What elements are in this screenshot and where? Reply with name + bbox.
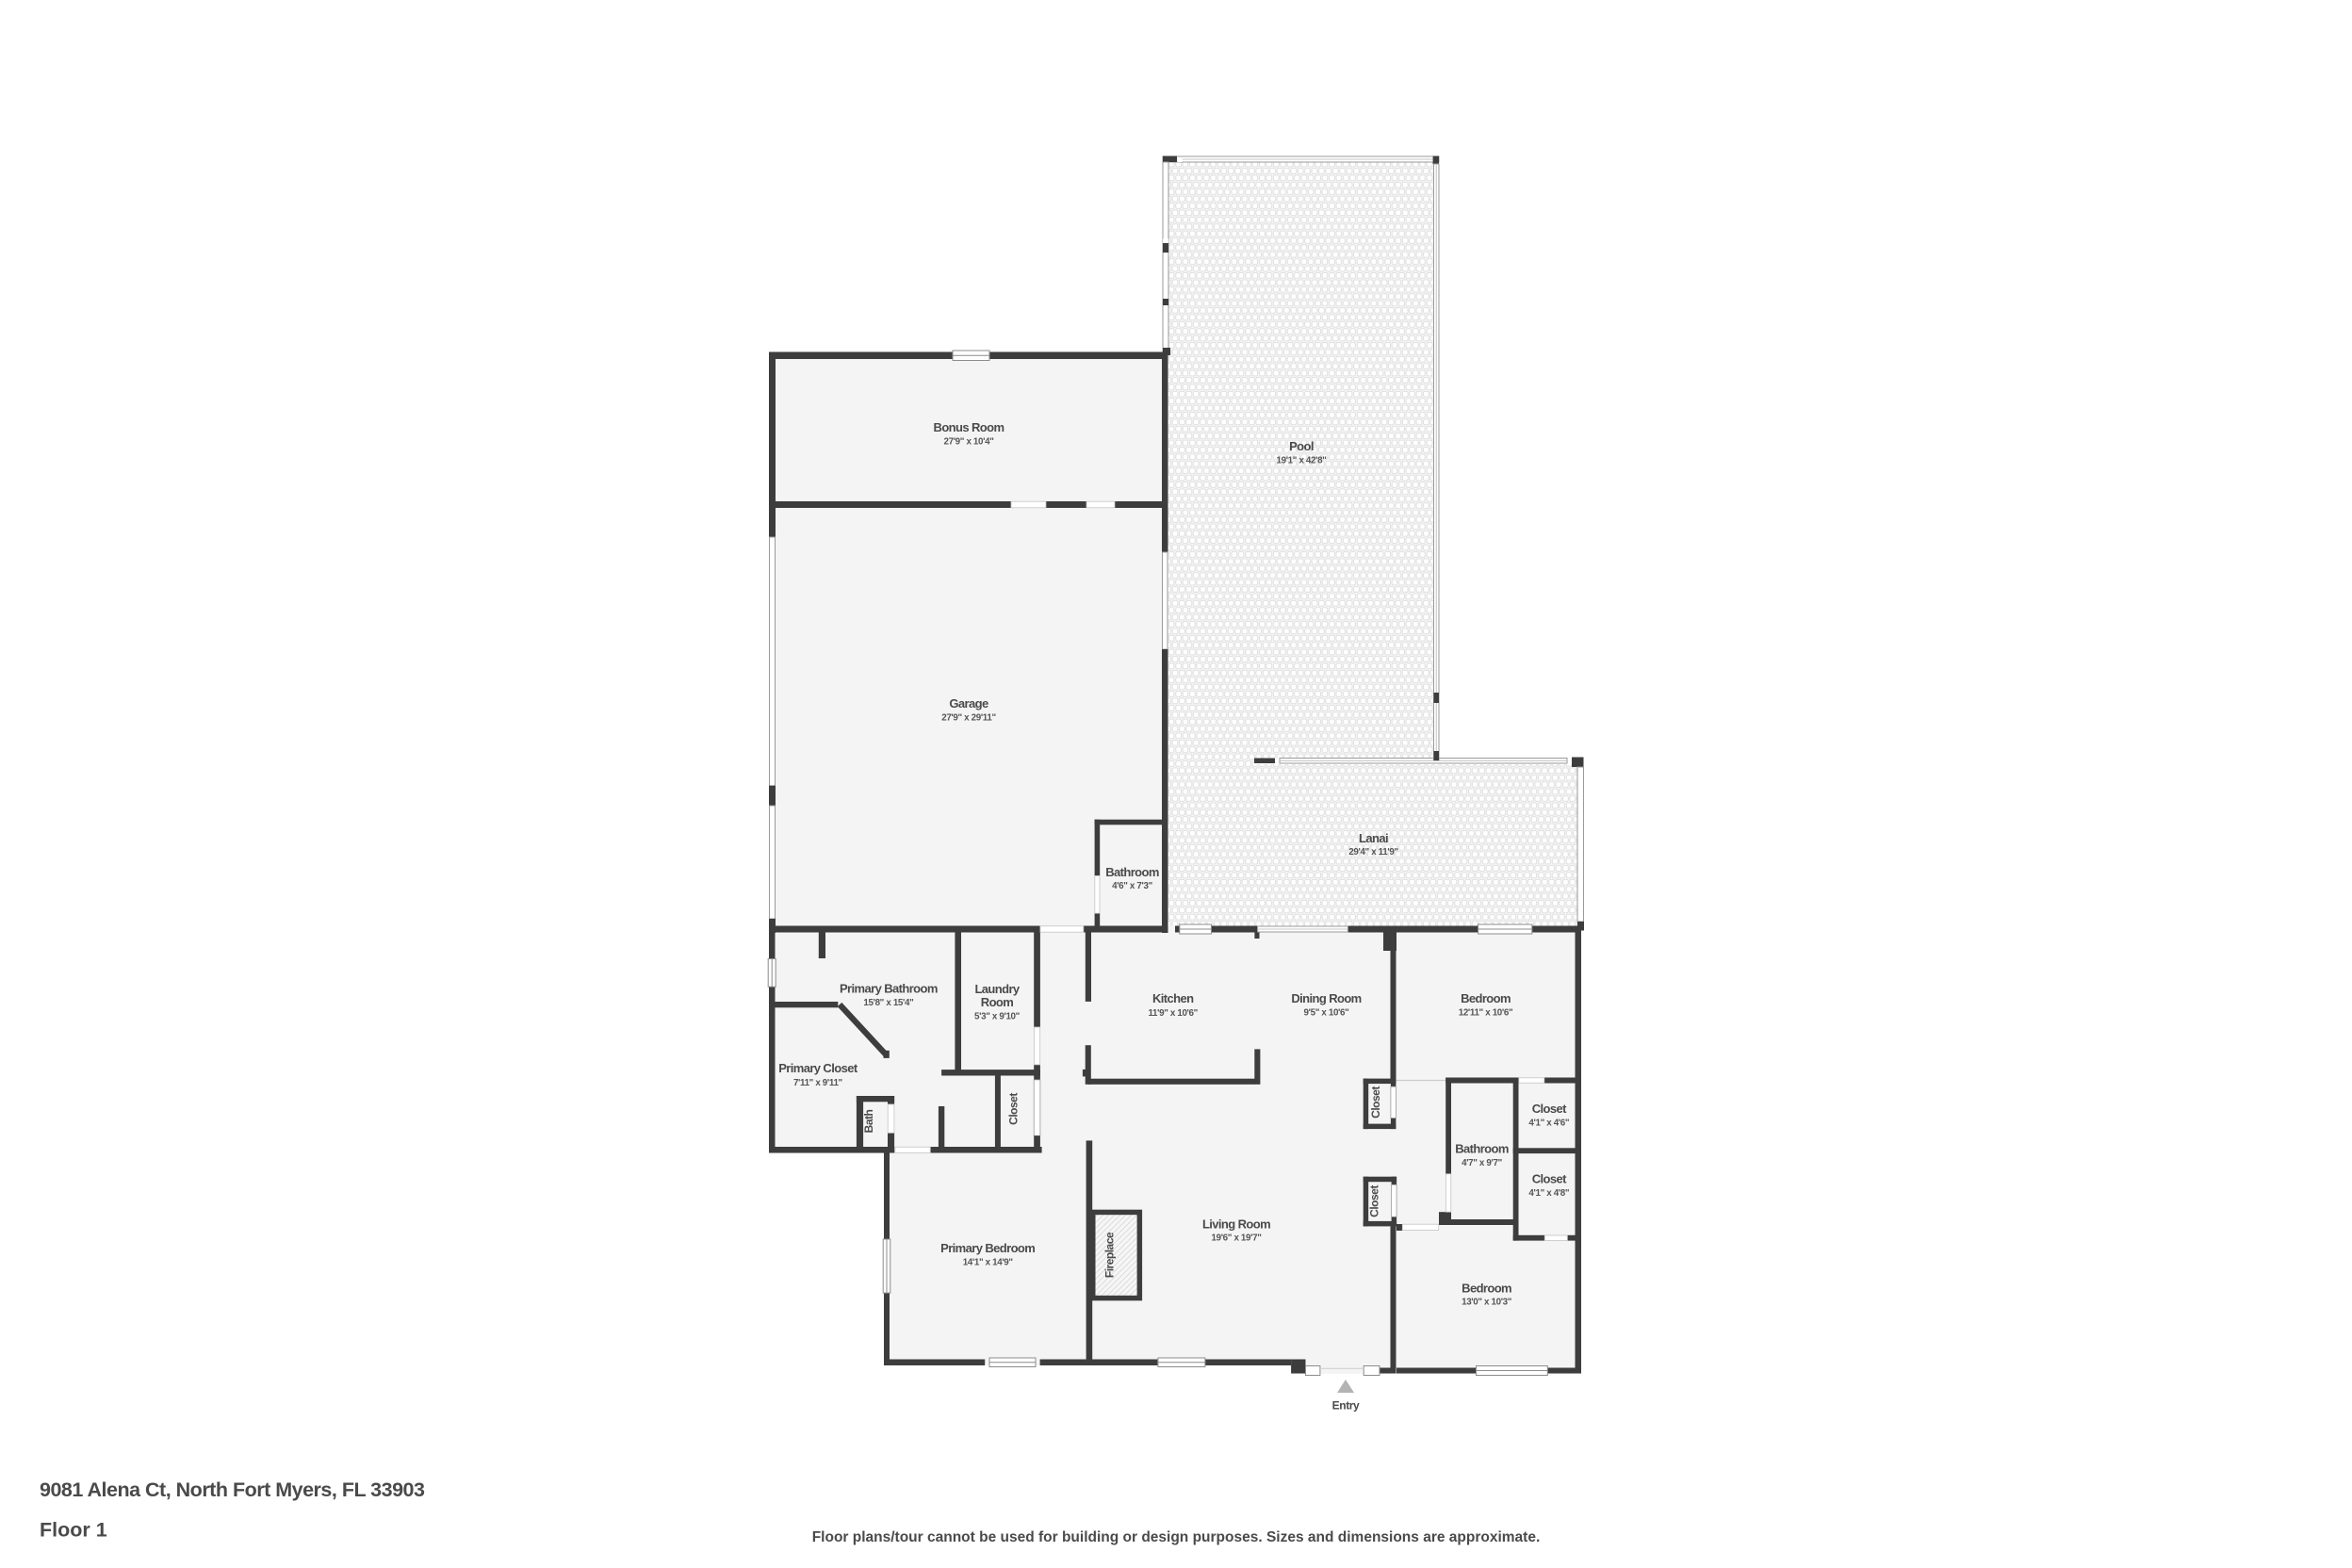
svg-text:15'8" x 15'4": 15'8" x 15'4" (863, 998, 913, 1008)
svg-text:Floor plans/tour cannot be use: Floor plans/tour cannot be used for buil… (812, 1529, 1541, 1545)
svg-text:Pool: Pool (1289, 439, 1314, 453)
svg-text:27'9" x 29'11": 27'9" x 29'11" (941, 713, 996, 724)
svg-text:Entry: Entry (1332, 1399, 1360, 1413)
svg-text:Closet: Closet (1532, 1102, 1567, 1116)
svg-text:Primary Bedroom: Primary Bedroom (940, 1241, 1035, 1255)
svg-text:11'9" x 10'6": 11'9" x 10'6" (1148, 1008, 1197, 1019)
svg-text:Floor 1: Floor 1 (40, 1519, 107, 1542)
svg-text:Laundry: Laundry (974, 982, 1020, 996)
svg-text:Fireplace: Fireplace (1103, 1232, 1117, 1278)
svg-text:Bonus Room: Bonus Room (934, 420, 1004, 434)
svg-text:Bathroom: Bathroom (1455, 1142, 1509, 1156)
svg-text:9081 Alena Ct, North Fort Myer: 9081 Alena Ct, North Fort Myers, FL 3390… (40, 1478, 425, 1501)
svg-text:Closet: Closet (1007, 1093, 1021, 1125)
svg-text:14'1" x 14'9": 14'1" x 14'9" (963, 1258, 1013, 1268)
svg-text:Closet: Closet (1369, 1086, 1382, 1119)
svg-text:4'1" x 4'8": 4'1" x 4'8" (1528, 1188, 1569, 1199)
svg-text:Primary Closet: Primary Closet (778, 1061, 858, 1075)
svg-text:Living Room: Living Room (1202, 1217, 1270, 1232)
svg-text:9'5" x 10'6": 9'5" x 10'6" (1304, 1008, 1349, 1019)
svg-text:Closet: Closet (1368, 1185, 1381, 1217)
svg-text:Bathroom: Bathroom (1105, 865, 1159, 879)
svg-text:Bedroom: Bedroom (1462, 1282, 1511, 1296)
svg-text:4'1" x 4'6": 4'1" x 4'6" (1528, 1119, 1569, 1129)
svg-text:Lanai: Lanai (1359, 831, 1388, 845)
svg-text:Closet: Closet (1532, 1172, 1567, 1186)
svg-text:19'6" x 19'7": 19'6" x 19'7" (1212, 1233, 1262, 1244)
svg-text:7'11" x 9'11": 7'11" x 9'11" (793, 1078, 842, 1088)
svg-text:Kitchen: Kitchen (1152, 991, 1194, 1005)
svg-text:5'3" x 9'10": 5'3" x 9'10" (974, 1012, 1020, 1022)
svg-text:27'9" x 10'4": 27'9" x 10'4" (944, 437, 994, 448)
svg-text:Bath: Bath (862, 1110, 875, 1134)
svg-text:Garage: Garage (949, 696, 988, 710)
svg-text:4'6" x 7'3": 4'6" x 7'3" (1112, 881, 1152, 891)
svg-text:19'1" x 42'8": 19'1" x 42'8" (1277, 456, 1327, 466)
svg-text:Bedroom: Bedroom (1461, 991, 1511, 1005)
svg-text:Dining Room: Dining Room (1291, 991, 1361, 1005)
svg-text:29'4" x 11'9": 29'4" x 11'9" (1348, 847, 1397, 857)
svg-text:12'11" x 10'6": 12'11" x 10'6" (1459, 1008, 1513, 1019)
svg-text:Primary Bathroom: Primary Bathroom (840, 982, 938, 996)
svg-text:4'7" x 9'7": 4'7" x 9'7" (1462, 1158, 1502, 1168)
svg-text:Room: Room (981, 995, 1013, 1009)
svg-text:13'0" x 10'3": 13'0" x 10'3" (1462, 1298, 1511, 1308)
